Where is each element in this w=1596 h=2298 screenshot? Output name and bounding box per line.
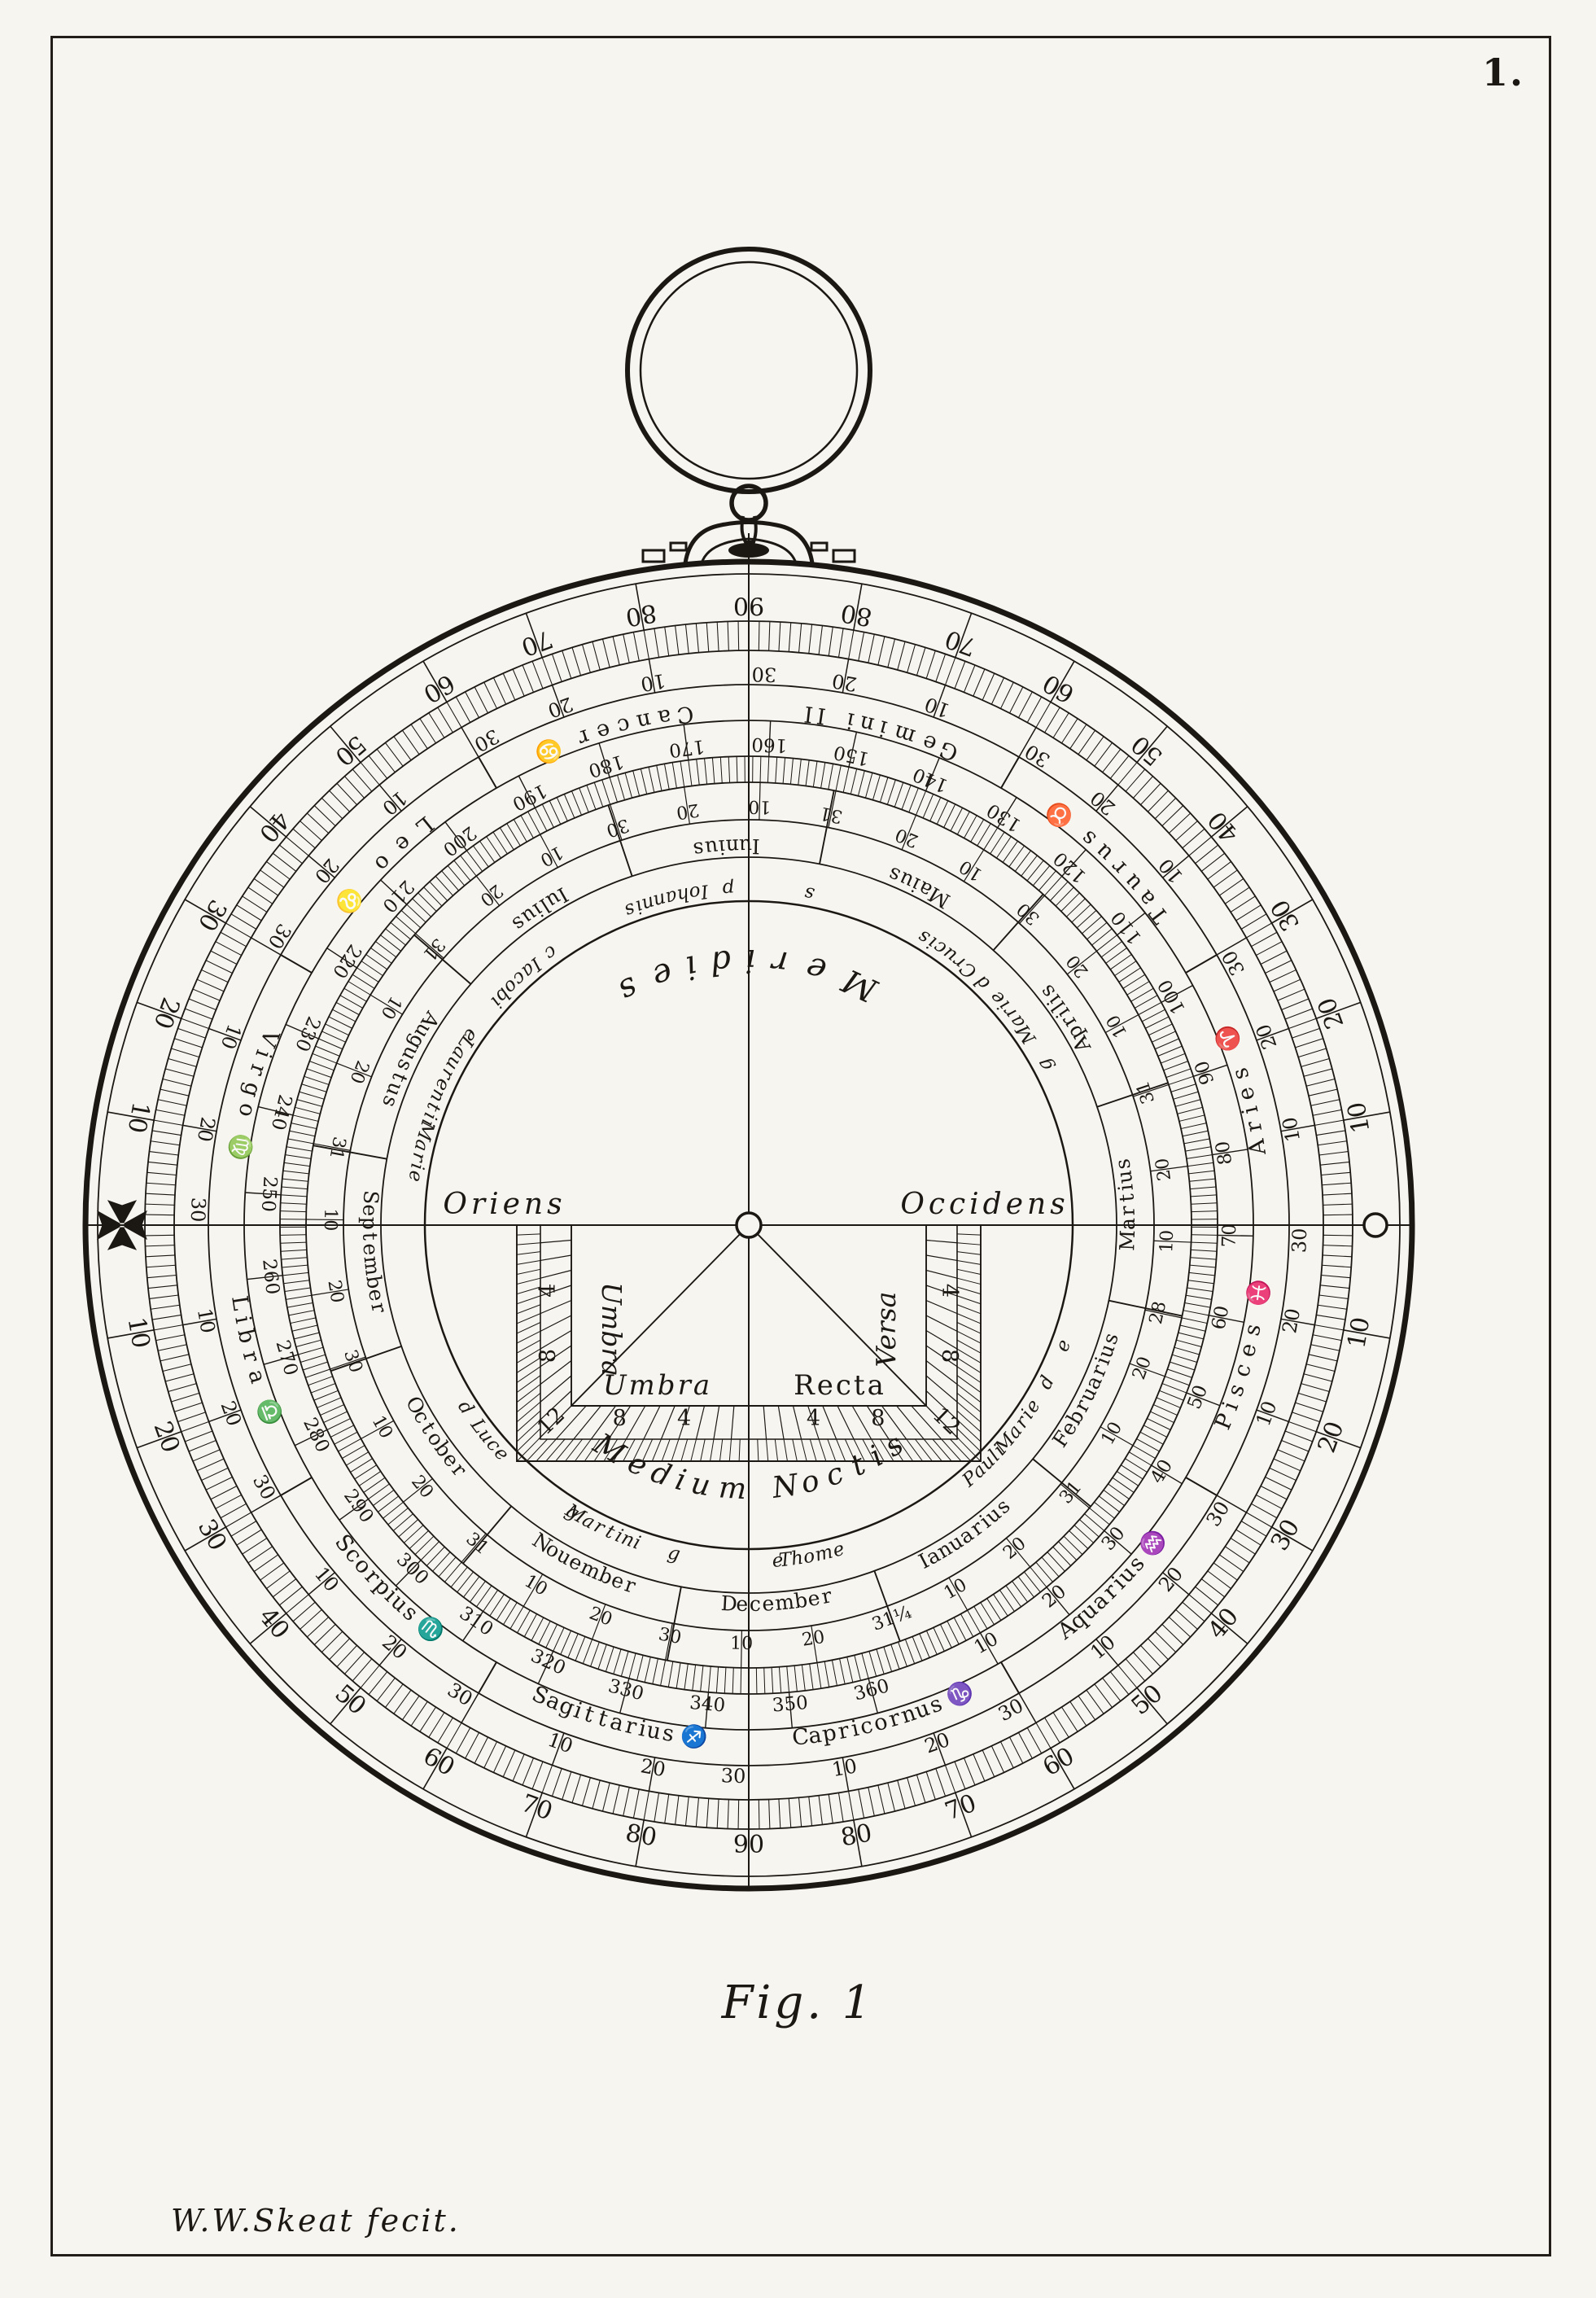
svg-text:S: S — [359, 1189, 383, 1205]
svg-text:31¼: 31¼ — [869, 1602, 914, 1635]
svg-text:40: 40 — [1203, 806, 1244, 848]
svg-text:d: d — [1034, 1372, 1059, 1393]
svg-text:10: 10 — [730, 1634, 753, 1654]
svg-text:20: 20 — [1063, 951, 1093, 981]
svg-text:10: 10 — [1278, 1115, 1305, 1144]
svg-text:i: i — [1237, 1104, 1263, 1117]
suspension-ring — [627, 249, 870, 492]
svg-text:20: 20 — [921, 1728, 952, 1758]
svg-text:c: c — [614, 712, 632, 740]
svg-text:30: 30 — [192, 895, 232, 936]
svg-text:30: 30 — [192, 1514, 232, 1556]
svg-text:230: 230 — [291, 1013, 324, 1055]
svg-text:80: 80 — [623, 598, 659, 632]
svg-text:80: 80 — [1212, 1140, 1236, 1167]
svg-text:s: s — [879, 1428, 910, 1464]
svg-text:10: 10 — [378, 786, 411, 820]
svg-text:r: r — [238, 1348, 265, 1364]
svg-text:i: i — [745, 942, 755, 979]
svg-text:e: e — [1233, 1084, 1261, 1103]
svg-text:10: 10 — [971, 1628, 1002, 1658]
svg-text:s: s — [1227, 1065, 1255, 1083]
svg-text:m: m — [891, 720, 919, 750]
svg-text:10: 10 — [1086, 1630, 1119, 1664]
svg-text:n: n — [725, 834, 739, 859]
svg-text:28: 28 — [1146, 1299, 1170, 1326]
svg-text:e: e — [762, 1591, 775, 1616]
svg-text:10: 10 — [956, 856, 986, 885]
svg-text:20: 20 — [193, 1115, 220, 1144]
svg-text:50: 50 — [1126, 729, 1169, 771]
svg-text:70: 70 — [518, 624, 557, 661]
svg-text:I: I — [752, 834, 760, 858]
svg-text:♉: ♉ — [1040, 796, 1078, 834]
svg-text:4: 4 — [677, 1406, 691, 1431]
svg-text:♓: ♓ — [1244, 1277, 1273, 1308]
svg-text:80: 80 — [838, 598, 874, 632]
svg-text:♒: ♒ — [1135, 1525, 1172, 1562]
svg-text:20: 20 — [1129, 1354, 1156, 1382]
svg-text:i: i — [1218, 1398, 1244, 1413]
svg-text:330: 330 — [606, 1675, 646, 1705]
svg-text:20: 20 — [1086, 786, 1119, 820]
svg-text:30: 30 — [604, 814, 632, 841]
svg-text:30: 30 — [720, 1764, 746, 1788]
svg-text:c: c — [1229, 1361, 1257, 1380]
svg-text:120: 120 — [1050, 847, 1091, 887]
svg-text:210: 210 — [378, 876, 418, 917]
svg-text:220: 220 — [328, 940, 365, 982]
east-circle-marker — [1364, 1214, 1387, 1237]
svg-text:110: 110 — [1108, 907, 1147, 948]
svg-text:r: r — [1115, 1206, 1139, 1216]
svg-text:s: s — [692, 837, 706, 861]
svg-text:u: u — [1090, 838, 1117, 866]
svg-text:200: 200 — [439, 821, 480, 860]
svg-text:160: 160 — [751, 733, 788, 756]
svg-text:50: 50 — [330, 729, 372, 771]
svg-text:4: 4 — [807, 1406, 820, 1431]
svg-text:10: 10 — [921, 692, 952, 722]
svg-text:r: r — [366, 1300, 391, 1315]
svg-text:o: o — [369, 849, 396, 876]
svg-text:i: i — [682, 948, 700, 987]
svg-text:s: s — [1110, 1158, 1135, 1171]
svg-text:40: 40 — [253, 1603, 295, 1645]
svg-text:t: t — [358, 1232, 382, 1241]
svg-text:70: 70 — [1219, 1223, 1241, 1248]
svg-text:10: 10 — [310, 1562, 343, 1595]
svg-text:20: 20 — [639, 1754, 667, 1781]
svg-text:♎: ♎ — [252, 1394, 286, 1429]
svg-text:e: e — [390, 829, 417, 857]
svg-text:r: r — [820, 1583, 834, 1609]
svg-text:i: i — [671, 1463, 689, 1498]
svg-text:♏: ♏ — [412, 1611, 449, 1648]
svg-text:r: r — [244, 1061, 271, 1079]
svg-text:m: m — [718, 1471, 748, 1506]
svg-text:e: e — [404, 1169, 427, 1183]
svg-text:180: 180 — [586, 751, 627, 781]
svg-text:4: 4 — [536, 1284, 561, 1298]
svg-text:r: r — [575, 724, 592, 751]
svg-text:10: 10 — [1342, 1315, 1375, 1350]
svg-text:31: 31 — [325, 1135, 349, 1161]
svg-text:10: 10 — [830, 1754, 859, 1781]
svg-text:o: o — [798, 1464, 823, 1500]
svg-text:V: V — [254, 1026, 284, 1051]
svg-text:♍: ♍ — [225, 1131, 256, 1162]
svg-text:20: 20 — [378, 1630, 411, 1664]
svg-text:i: i — [877, 715, 890, 741]
svg-text:260: 260 — [258, 1258, 283, 1295]
svg-text:10: 10 — [544, 1728, 575, 1758]
svg-text:d: d — [453, 1397, 478, 1418]
svg-text:60: 60 — [1038, 668, 1079, 708]
svg-text:70: 70 — [942, 1789, 981, 1827]
svg-text:30: 30 — [1266, 1514, 1305, 1556]
svg-text:20: 20 — [310, 854, 343, 887]
svg-text:10: 10 — [748, 796, 772, 817]
svg-text:30: 30 — [657, 1624, 683, 1648]
svg-text:10: 10 — [216, 1021, 246, 1052]
svg-text:100: 100 — [1154, 976, 1190, 1018]
svg-text:t: t — [1114, 1193, 1139, 1203]
svg-text:60: 60 — [418, 668, 460, 708]
svg-text:m: m — [359, 1255, 384, 1277]
svg-text:12: 12 — [532, 1403, 570, 1440]
svg-text:d: d — [708, 943, 732, 982]
svg-text:20: 20 — [801, 1627, 827, 1651]
svg-text:c: c — [540, 941, 562, 965]
svg-text:170: 170 — [667, 735, 706, 760]
plate-number: 1. — [1482, 50, 1524, 94]
svg-text:M: M — [836, 961, 883, 1009]
svg-text:140: 140 — [910, 763, 951, 796]
svg-text:20: 20 — [1313, 994, 1350, 1033]
svg-text:20: 20 — [476, 880, 506, 910]
svg-text:30: 30 — [1288, 1228, 1311, 1253]
svg-text:C: C — [676, 701, 695, 728]
svg-text:r: r — [767, 943, 789, 982]
svg-text:e: e — [359, 1242, 383, 1256]
svg-text:n: n — [635, 707, 654, 735]
svg-text:a: a — [656, 703, 673, 730]
svg-text:a: a — [1116, 1218, 1139, 1230]
svg-text:b: b — [232, 1327, 260, 1346]
svg-text:s: s — [802, 882, 815, 905]
engraver-signature: W.W.Skeat fecit. — [171, 2203, 461, 2239]
svg-text:20: 20 — [893, 824, 921, 851]
svg-text:20: 20 — [407, 1472, 437, 1502]
svg-text:e: e — [647, 954, 677, 996]
svg-text:A: A — [1244, 1137, 1271, 1158]
svg-text:r: r — [1240, 1119, 1267, 1135]
svg-text:20: 20 — [544, 692, 575, 722]
svg-text:Occidens: Occidens — [900, 1188, 1069, 1221]
svg-text:20: 20 — [1252, 1021, 1282, 1052]
svg-text:♌: ♌ — [330, 882, 368, 920]
svg-text:n: n — [857, 710, 877, 738]
svg-text:M: M — [587, 1427, 632, 1472]
svg-text:m: m — [774, 1590, 796, 1615]
svg-text:e: e — [736, 1592, 748, 1616]
svg-text:240: 240 — [267, 1092, 296, 1132]
svg-text:20: 20 — [587, 1604, 615, 1630]
svg-text:360: 360 — [851, 1675, 891, 1705]
svg-text:30: 30 — [1266, 895, 1305, 936]
svg-text:u: u — [739, 834, 752, 858]
astrolabe-figure: 1010101020202020303030304040404050505050… — [0, 0, 1596, 2298]
svg-text:40: 40 — [1203, 1603, 1244, 1645]
svg-text:50: 50 — [1126, 1679, 1169, 1721]
svg-text:130: 130 — [983, 799, 1025, 835]
svg-text:30: 30 — [1098, 1523, 1130, 1555]
svg-text:270: 270 — [271, 1337, 301, 1377]
svg-text:g: g — [1033, 1055, 1057, 1075]
svg-text:i: i — [230, 1314, 256, 1326]
svg-text:70: 70 — [942, 624, 981, 661]
svg-text:10: 10 — [639, 669, 667, 696]
svg-text:e: e — [802, 948, 830, 990]
svg-text:340: 340 — [689, 1692, 726, 1717]
svg-text:t: t — [846, 1447, 871, 1483]
plate-page: 1010101020202020303030304040404050505050… — [0, 0, 1596, 2298]
svg-text:20: 20 — [1313, 1418, 1350, 1457]
svg-text:10: 10 — [1154, 854, 1187, 887]
svg-text:80: 80 — [623, 1819, 659, 1852]
svg-text:20: 20 — [675, 799, 700, 823]
svg-text:r: r — [836, 1718, 850, 1744]
svg-text:Oriens: Oriens — [443, 1188, 566, 1221]
svg-text:r: r — [1106, 855, 1131, 880]
svg-text:Versa: Versa — [870, 1292, 902, 1368]
svg-text:I: I — [815, 703, 828, 729]
svg-text:s: s — [613, 969, 645, 1009]
svg-text:8: 8 — [613, 1406, 627, 1431]
svg-text:s: s — [1222, 1381, 1250, 1399]
svg-text:p: p — [820, 1720, 838, 1747]
svg-text:10: 10 — [1252, 1398, 1282, 1429]
svg-text:60: 60 — [1208, 1304, 1233, 1332]
svg-text:20: 20 — [345, 1057, 373, 1086]
svg-text:8: 8 — [937, 1349, 962, 1363]
figure-caption: Fig. 1 — [0, 1976, 1596, 2029]
center-hole — [737, 1213, 761, 1237]
svg-text:30: 30 — [339, 1347, 366, 1376]
svg-text:u: u — [1119, 869, 1148, 896]
svg-text:310: 310 — [456, 1603, 497, 1640]
svg-text:G: G — [936, 736, 962, 766]
svg-text:290: 290 — [339, 1486, 378, 1527]
svg-text:♋: ♋ — [531, 734, 566, 769]
svg-text:L: L — [411, 811, 439, 839]
svg-text:Umbra: Umbra — [596, 1282, 627, 1377]
svg-text:e: e — [358, 1204, 383, 1217]
svg-text:4: 4 — [937, 1284, 962, 1298]
svg-text:s: s — [661, 1720, 676, 1747]
svg-text:o: o — [234, 1101, 261, 1119]
svg-text:20: 20 — [147, 1418, 185, 1457]
svg-text:10: 10 — [320, 1208, 340, 1231]
svg-text:20: 20 — [830, 669, 859, 696]
svg-text:g: g — [666, 1542, 682, 1565]
svg-text:P: P — [1210, 1410, 1240, 1434]
svg-text:31: 31 — [1133, 1079, 1160, 1106]
svg-text:c: c — [750, 1592, 762, 1616]
svg-text:80: 80 — [838, 1819, 874, 1852]
svg-text:i: i — [844, 707, 856, 733]
svg-text:10: 10 — [1157, 1229, 1178, 1253]
svg-text:30: 30 — [1013, 899, 1044, 929]
svg-text:e: e — [594, 717, 614, 745]
svg-text:g: g — [238, 1079, 265, 1100]
svg-text:20: 20 — [1152, 1157, 1176, 1182]
svg-text:♈: ♈ — [1211, 1021, 1245, 1056]
svg-text:i: i — [250, 1047, 276, 1062]
svg-text:10: 10 — [376, 992, 405, 1022]
svg-text:31: 31 — [818, 803, 844, 827]
svg-text:20: 20 — [1038, 1581, 1070, 1613]
svg-text:40: 40 — [253, 806, 295, 848]
svg-text:e: e — [919, 729, 940, 757]
svg-text:N: N — [769, 1469, 801, 1505]
svg-text:♐: ♐ — [680, 1722, 710, 1751]
svg-text:Recta: Recta — [794, 1369, 886, 1402]
svg-text:30: 30 — [751, 663, 776, 686]
svg-text:a: a — [243, 1367, 270, 1387]
svg-text:8: 8 — [871, 1406, 885, 1431]
svg-text:250: 250 — [257, 1175, 281, 1212]
svg-text:8: 8 — [536, 1349, 561, 1363]
svg-text:e: e — [1052, 1337, 1075, 1355]
svg-text:20: 20 — [1154, 1562, 1187, 1595]
svg-text:40: 40 — [1147, 1456, 1177, 1487]
svg-text:70: 70 — [518, 1789, 557, 1827]
svg-text:350: 350 — [772, 1692, 809, 1717]
svg-text:u: u — [689, 1467, 713, 1504]
svg-text:20: 20 — [216, 1398, 246, 1429]
svg-text:♑: ♑ — [942, 1677, 977, 1712]
svg-text:20: 20 — [147, 994, 185, 1033]
svg-text:10: 10 — [122, 1315, 155, 1350]
svg-text:20: 20 — [1278, 1307, 1305, 1335]
svg-text:20: 20 — [999, 1534, 1030, 1564]
svg-text:20: 20 — [323, 1279, 347, 1305]
svg-text:u: u — [1112, 1169, 1137, 1185]
svg-text:M: M — [1115, 1229, 1139, 1251]
svg-text:12: 12 — [928, 1403, 965, 1440]
svg-text:10: 10 — [1342, 1100, 1375, 1136]
svg-text:50: 50 — [330, 1679, 372, 1721]
svg-text:c: c — [821, 1456, 847, 1493]
svg-text:60: 60 — [1038, 1742, 1079, 1782]
svg-text:60: 60 — [418, 1742, 460, 1782]
svg-text:s: s — [1240, 1322, 1266, 1338]
svg-text:10: 10 — [122, 1100, 155, 1136]
svg-text:e: e — [1235, 1341, 1262, 1359]
svg-text:30: 30 — [186, 1197, 210, 1222]
svg-text:L: L — [226, 1294, 253, 1312]
svg-text:p: p — [722, 878, 736, 900]
svg-text:Umbra: Umbra — [603, 1369, 712, 1402]
svg-text:u: u — [704, 836, 719, 860]
svg-text:190: 190 — [509, 779, 550, 814]
svg-text:p: p — [358, 1217, 382, 1230]
svg-text:I: I — [802, 701, 814, 727]
svg-text:10: 10 — [193, 1307, 220, 1335]
svg-text:s: s — [1076, 825, 1101, 851]
